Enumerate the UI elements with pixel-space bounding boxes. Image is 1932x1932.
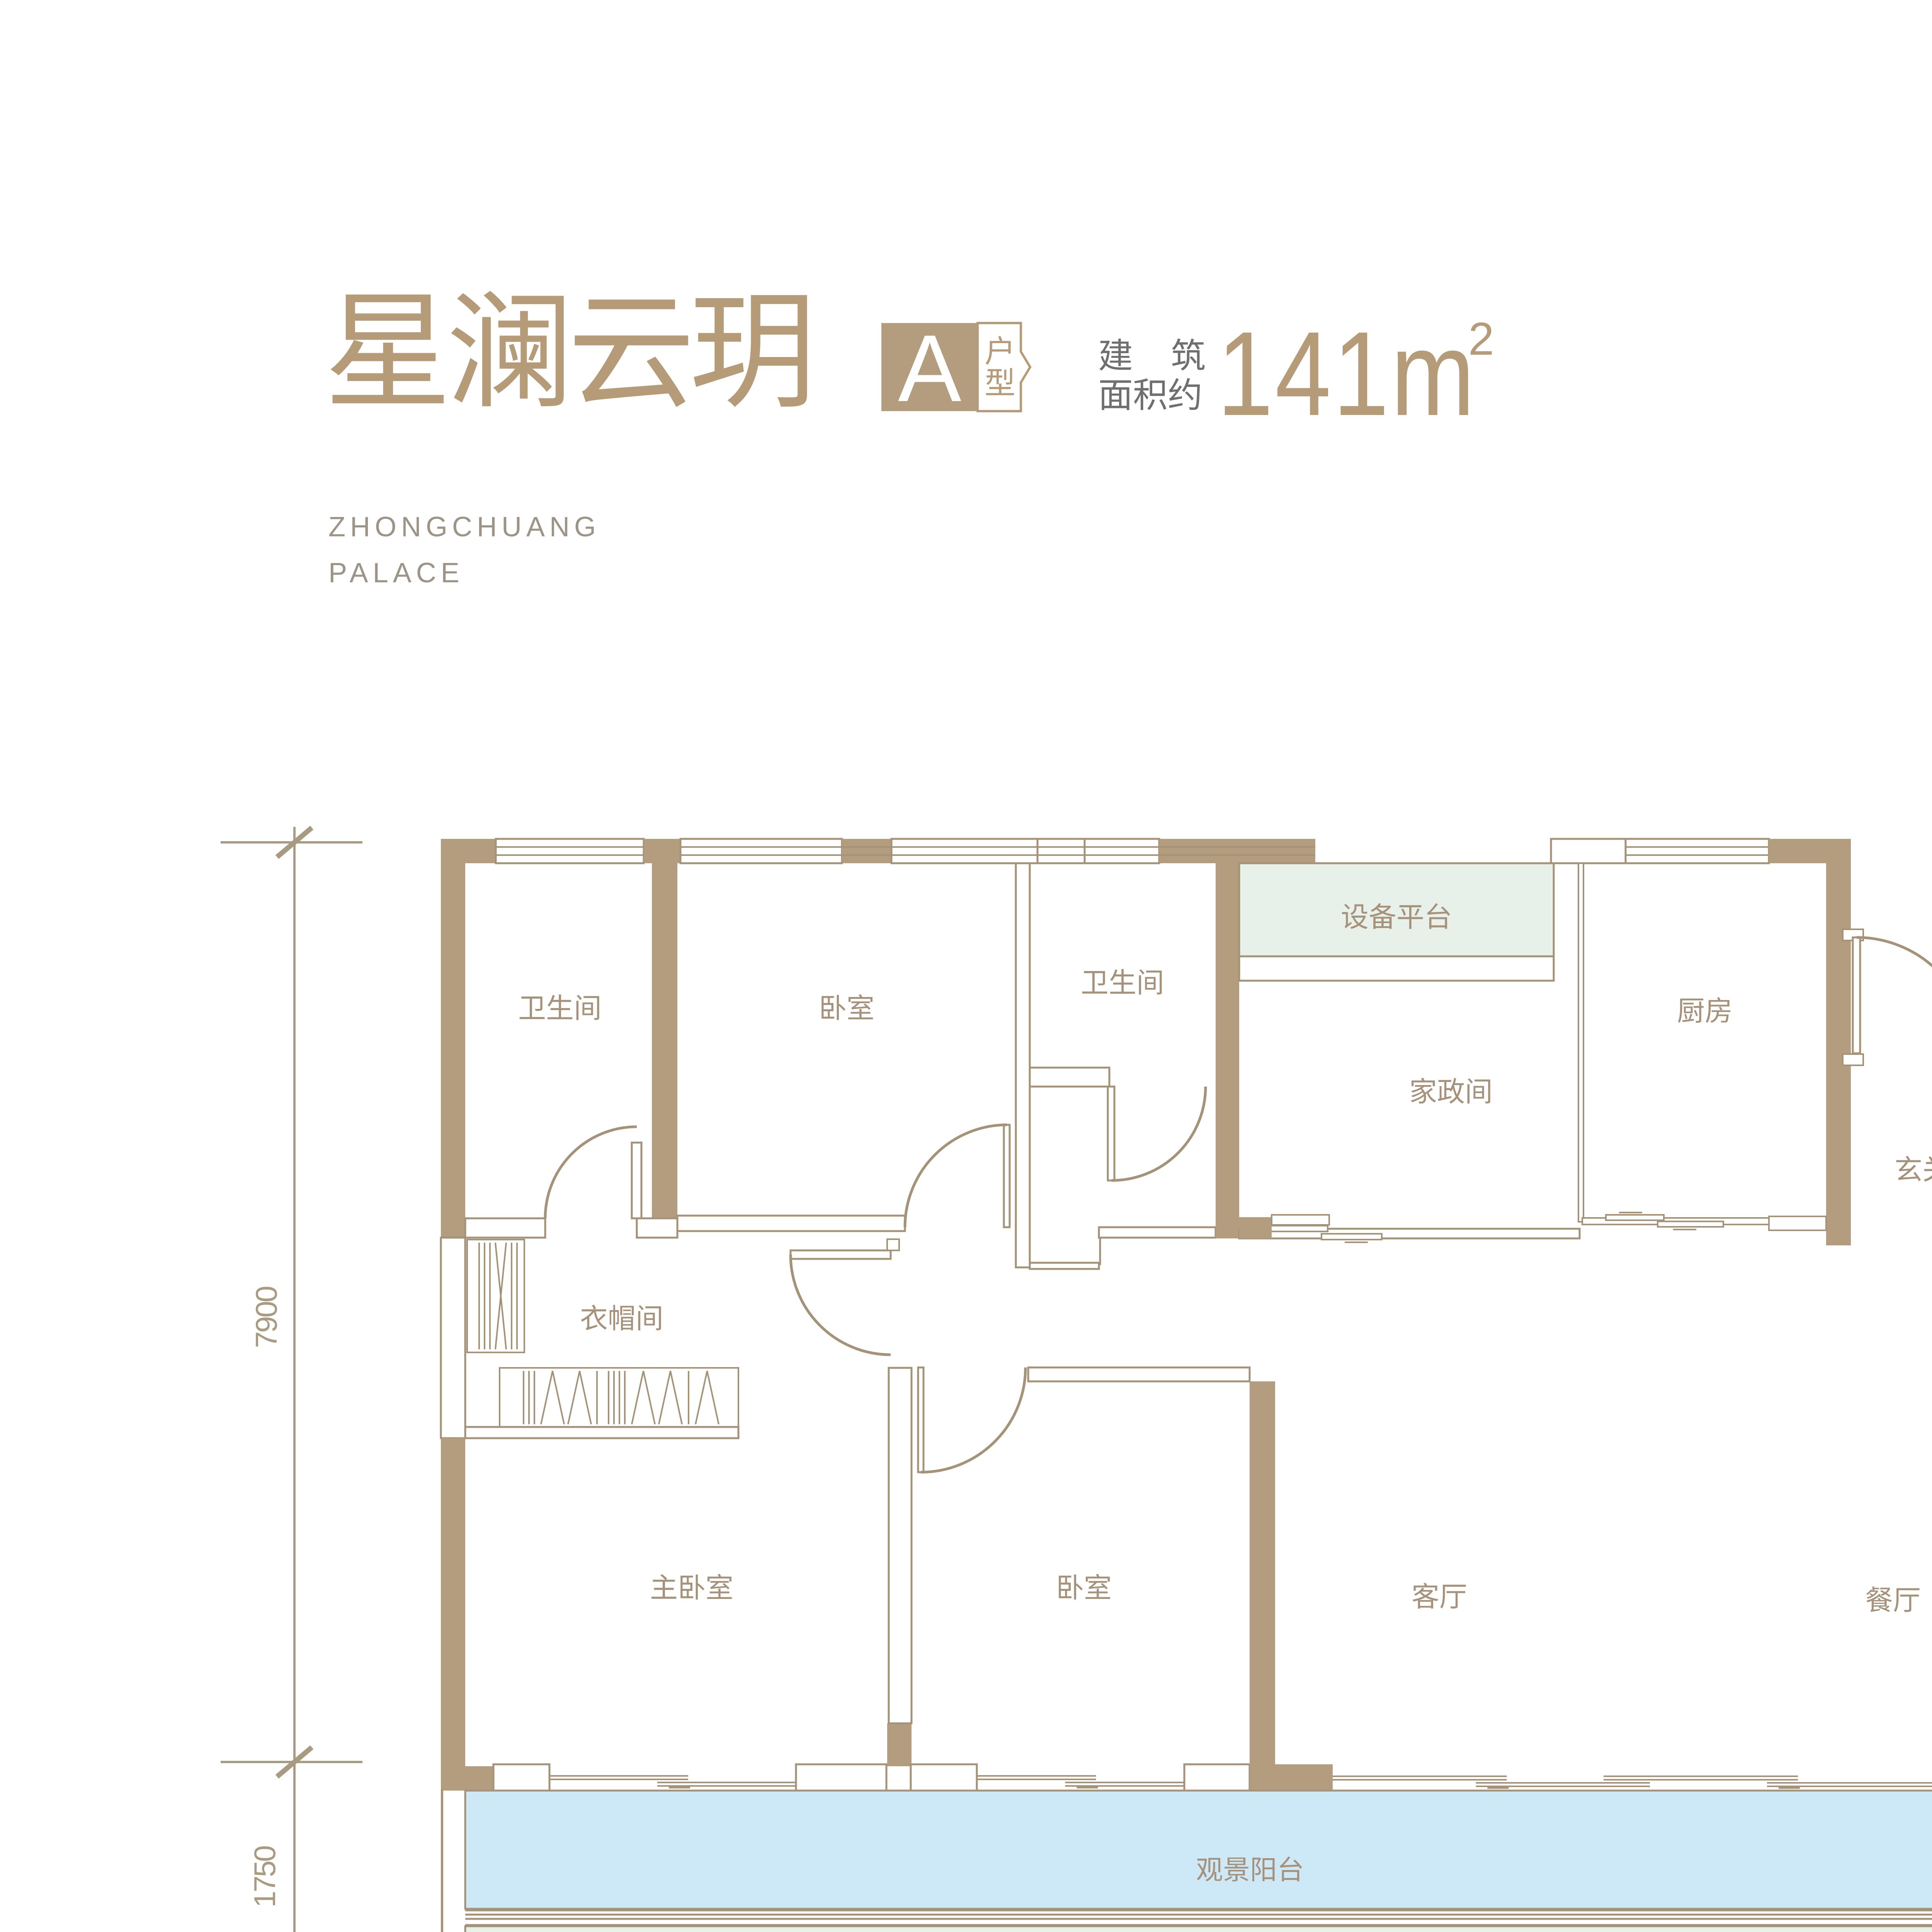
svg-text:141m: 141m (1217, 307, 1477, 441)
svg-text:2: 2 (1468, 313, 1494, 365)
svg-text:ZHONGCHUANG: ZHONGCHUANG (328, 512, 600, 543)
svg-text:A: A (898, 315, 961, 422)
svg-text:7900: 7900 (249, 1287, 283, 1348)
svg-text:PALACE: PALACE (328, 558, 464, 588)
svg-text:1750: 1750 (248, 1846, 282, 1908)
